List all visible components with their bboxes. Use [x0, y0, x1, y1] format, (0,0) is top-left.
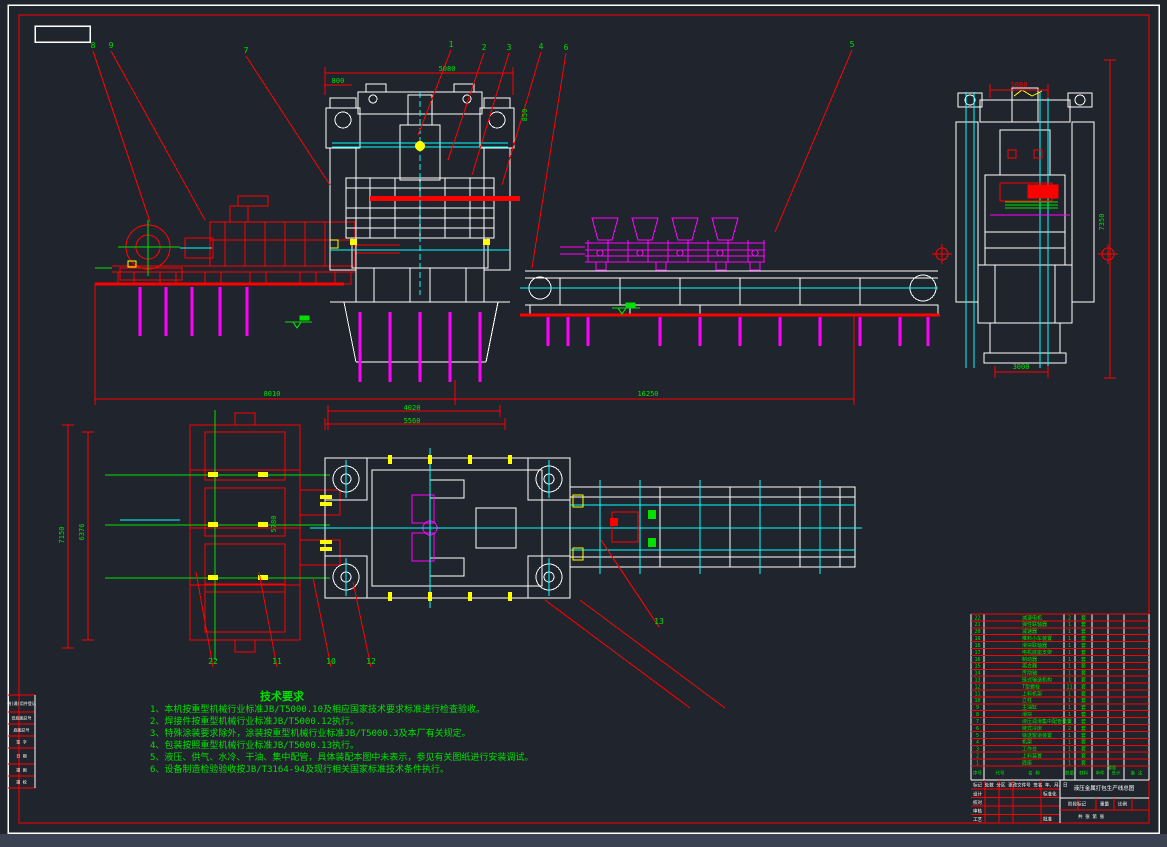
bom-mat: 套	[1081, 697, 1086, 704]
feeder-plan	[62, 413, 340, 652]
edge-strip-label: 签 字	[16, 739, 26, 745]
dimension-text: 800	[332, 77, 345, 85]
tech-note-line: 6、设备制造检验验收按JB/T3164-94及现行相关国家标准技术条件执行。	[150, 763, 449, 775]
edge-strip-label: 旧底图总号	[12, 715, 32, 721]
edge-strip: 借(通)用件登记旧底图总号底图总号签 字日 期描 图描 校	[7, 695, 36, 788]
cad-drawing: 22减速电机2套21弹性联轴器1套20减速器1套19推料小车装置1套18滑块联轴…	[0, 0, 1167, 847]
frame-corner-box	[35, 26, 90, 42]
bom-no: 1	[976, 760, 979, 766]
callout-leader	[775, 50, 852, 232]
bom-mat: 套	[1081, 635, 1086, 642]
bom-name: T型螺栓	[1022, 683, 1040, 690]
cad-canvas: 22减速电机2套21弹性联轴器1套20减速器1套19推料小车装置1套18滑块联轴…	[0, 0, 1167, 847]
bom-no: 15	[974, 664, 980, 670]
bom-mat: 套	[1081, 676, 1086, 683]
bom-header: 总计	[1112, 770, 1121, 777]
bom-header: 备 注	[1131, 770, 1143, 777]
callout-leader	[111, 51, 205, 220]
dimension-text: 6376	[78, 524, 86, 541]
bom-qty: 1	[1068, 622, 1071, 628]
callout-number: 9	[109, 41, 114, 50]
press-hub	[415, 141, 425, 151]
dimension-text: 5080	[439, 65, 456, 73]
bom-name: 链式输送机构	[1022, 676, 1052, 683]
bom-name: 底座	[1022, 759, 1032, 766]
leader-line	[545, 600, 690, 708]
bom-no: 21	[974, 622, 980, 628]
callout-leader	[601, 540, 659, 627]
edge-strip-label: 底图总号	[14, 727, 30, 733]
callout-number: 22	[208, 657, 218, 666]
bom-no: 5	[976, 733, 979, 739]
front-view	[95, 84, 940, 362]
bom-mat: 套	[1081, 690, 1086, 697]
callout-number: 5	[850, 40, 855, 49]
bom-mat: 套	[1081, 663, 1086, 670]
bom-qty: 1	[1068, 705, 1071, 711]
tb-drawing-title: 液压金属打包生产线总图	[1074, 784, 1135, 792]
bom-mat: 套	[1081, 670, 1086, 677]
bom-no: 6	[976, 726, 979, 732]
bom-mat: 套	[1081, 656, 1086, 663]
bom-name: 滑块联轴器	[1022, 642, 1047, 649]
bom-mat: 套	[1081, 614, 1086, 621]
bom-name: 减速器	[1022, 628, 1037, 635]
bom-no: 8	[976, 712, 979, 718]
bom-name: 工作台	[1022, 746, 1037, 753]
edge-strip-label: 描 图	[16, 767, 26, 773]
edge-strip-label: 借(通)用件登记	[7, 700, 36, 706]
bom-no: 16	[974, 657, 980, 663]
bom-mat: 套	[1081, 642, 1086, 649]
tech-notes: 技术要求 1、本机按重型机械行业标准JB/T5000.10及相应国家技术要求标准…	[150, 689, 533, 775]
bom-no: 4	[976, 740, 979, 746]
bom-qty: 1	[1068, 657, 1071, 663]
callout-number: 13	[654, 617, 664, 626]
conveyor-plan	[570, 487, 855, 567]
callout-number: 3	[507, 43, 512, 52]
bom-name: 输送辊道装置	[1022, 732, 1052, 739]
dimension-text: 850	[521, 109, 529, 122]
callout-number: 8	[91, 41, 96, 50]
dimension-text: 5560	[404, 417, 421, 425]
bom-no: 10	[974, 698, 980, 704]
callout-leader	[532, 53, 566, 268]
bom-no: 22	[974, 615, 980, 621]
bom-name: 上料装置	[1022, 752, 1042, 759]
bom-qty: 1	[1068, 698, 1071, 704]
dimension-text: 7150	[58, 527, 66, 544]
chain-cooler	[560, 218, 765, 270]
bom-name: 减速电机	[1022, 614, 1042, 621]
tb-standard-label: 标准化	[1043, 791, 1057, 798]
bom-name: 上料机架	[1022, 690, 1042, 697]
bom-qty: 1	[1068, 664, 1071, 670]
bom-name: 传动轴	[1022, 670, 1037, 677]
callout-leader	[313, 578, 331, 667]
bom-name: 主油缸	[1022, 704, 1037, 711]
bom-no: 3	[976, 747, 979, 753]
bom-qty: 1	[1068, 760, 1071, 766]
bom-qty: 1	[1068, 671, 1071, 677]
callout-leader	[93, 51, 150, 222]
tb-left-label: 审核	[973, 808, 982, 815]
callout-number: 10	[326, 657, 336, 666]
press-plan-centerlines	[310, 448, 580, 608]
tech-notes-title: 技术要求	[260, 689, 305, 703]
bom-no: 2	[976, 753, 979, 759]
bom-table: 22减速电机2套21弹性联轴器1套20减速器1套19推料小车装置1套18滑块联轴…	[971, 614, 1149, 780]
bom-qty: 1	[1068, 753, 1071, 759]
bom-mat: 套	[1081, 704, 1086, 711]
bom-name: 机架	[1022, 739, 1032, 746]
tb-weight-label: 重量	[1100, 801, 1109, 808]
bom-no: 20	[974, 629, 980, 635]
bom-qty: 1	[1068, 636, 1071, 642]
bom-qty: 1	[1068, 740, 1071, 746]
edge-strip-label: 日 期	[16, 753, 26, 759]
callout-number: 6	[564, 43, 569, 52]
bom-no: 19	[974, 636, 980, 642]
conveyor-front	[525, 271, 938, 314]
plan-view	[62, 410, 862, 708]
bom-header: 序号	[973, 770, 982, 777]
bom-mat: 套	[1081, 732, 1086, 739]
press-feed-line	[370, 196, 520, 201]
bom-header: 代号	[996, 770, 1005, 777]
bom-name: 立柱	[1022, 697, 1032, 704]
bom-no: 13	[974, 677, 980, 683]
bom-header: 单件	[1096, 770, 1105, 777]
bom-name: 滑块	[1022, 711, 1032, 718]
dimension-text: 3000	[1013, 363, 1030, 371]
bom-mat: 套	[1081, 739, 1086, 746]
bom-mat: 套	[1081, 621, 1086, 628]
title-block: 标记 处数 分区 更改文件号 签名 年、月、日设计校对审核工艺批准标准化液压金属…	[971, 780, 1149, 823]
bom-qty: 1	[1068, 650, 1071, 656]
feeder-plan-centerlines	[105, 410, 330, 660]
bom-mat: 套	[1081, 683, 1086, 690]
bom-name: 离合器	[1022, 663, 1037, 670]
bom-name: 电机底座支架	[1022, 649, 1052, 656]
bom-name: 液压润滑集中配管装置	[1022, 718, 1072, 725]
leader-line	[580, 600, 725, 708]
bom-qty: 1	[1068, 691, 1071, 697]
tech-note-line: 2、焊接件按重型机械行业标准JB/T5000.12执行。	[150, 715, 359, 727]
tech-note-line: 3、特殊涂装要求除外，涂装按重型机械行业标准JB/T5000.3及本厂有关规定。	[150, 727, 471, 739]
bom-no: 12	[974, 684, 980, 690]
tech-note-line: 4、包装按照重型机械行业标准JB/T5000.13执行。	[150, 739, 359, 751]
callout-leader	[353, 582, 371, 667]
window-bottom-strip	[0, 834, 1167, 847]
bom-header: 名 称	[1028, 770, 1040, 777]
bom-qty: 1	[1068, 747, 1071, 753]
dimension-text: 8010	[264, 390, 281, 398]
bom-qty: 1	[1068, 677, 1071, 683]
bom-mat: 套	[1081, 718, 1086, 725]
dimension-text: 7350	[1098, 214, 1106, 231]
callout-leader	[259, 572, 277, 667]
bom-mat: 套	[1081, 725, 1086, 732]
side-view	[932, 60, 1118, 378]
callout-number: 2	[482, 43, 487, 52]
marker	[350, 239, 357, 245]
bom-qty: 1	[1068, 712, 1071, 718]
tech-note-line: 1、本机按重型机械行业标准JB/T5000.10及相应国家技术要求标准进行检查验…	[150, 703, 485, 715]
tb-left-label: 设计	[973, 791, 982, 798]
bom-no: 9	[976, 705, 979, 711]
bom-weight-label: 重量	[1108, 764, 1116, 770]
callout-leader	[246, 56, 330, 185]
dimension-text: 16250	[637, 390, 658, 398]
bom-no: 17	[974, 650, 980, 656]
tb-revision-row: 标记 处数 分区 更改文件号 签名 年、月、日	[973, 782, 1068, 789]
dimension-text: 4020	[404, 404, 421, 412]
bom-qty: 1	[1068, 629, 1071, 635]
bom-mat: 套	[1081, 649, 1086, 656]
bom-mat: 套	[1081, 746, 1086, 753]
tb-approve-label: 批准	[1043, 816, 1052, 823]
bom-mat: 套	[1081, 711, 1086, 718]
callout-number: 4	[539, 42, 544, 51]
tb-scale-label: 比例	[1118, 801, 1127, 808]
dimension-text: 5780	[270, 516, 278, 533]
bom-no: 18	[974, 643, 980, 649]
bom-no: 11	[974, 691, 980, 697]
bom-qty: 1	[1068, 643, 1071, 649]
bom-name: 推料小车装置	[1022, 635, 1052, 642]
bom-name: 制动器	[1022, 656, 1037, 663]
tb-left-label: 工艺	[973, 817, 982, 823]
bom-mat: 套	[1081, 752, 1086, 759]
bom-qty: 2	[1068, 726, 1071, 732]
bom-name: 链式冷床	[1022, 725, 1042, 732]
bom-no: 7	[976, 719, 979, 725]
tech-note-line: 5、液压、供气、水冷、干油、集中配管，具体装配本图中未表示，参见有关图纸进行安装…	[150, 751, 533, 763]
bom-qty: 1	[1068, 733, 1071, 739]
bom-qty: 1	[1068, 719, 1071, 725]
callout-number: 12	[366, 657, 376, 666]
callout-number: 1	[449, 40, 454, 49]
bom-mat: 套	[1081, 628, 1086, 635]
press-tie-rods	[330, 92, 510, 295]
edge-strip-label: 描 校	[16, 779, 26, 785]
bom-qty: 2	[1068, 615, 1071, 621]
bom-qty: 11	[1066, 684, 1072, 690]
bom-no: 14	[974, 671, 980, 677]
bom-mat: 套	[1081, 759, 1086, 766]
tb-sheet-label: 共 张 第 张	[1078, 813, 1105, 820]
callout-number: 11	[272, 657, 282, 666]
tb-stage-label: 阶段标记	[1068, 801, 1086, 808]
marker	[483, 239, 490, 245]
bom-header: 数量	[1065, 770, 1074, 777]
callout-number: 7	[244, 46, 249, 55]
anchor-bolts	[140, 287, 928, 382]
bom-header: 材料	[1079, 770, 1088, 777]
dimension-text: 1080	[1011, 81, 1028, 89]
tb-left-label: 校对	[973, 799, 982, 806]
bom-name: 弹性联轴器	[1022, 621, 1047, 628]
